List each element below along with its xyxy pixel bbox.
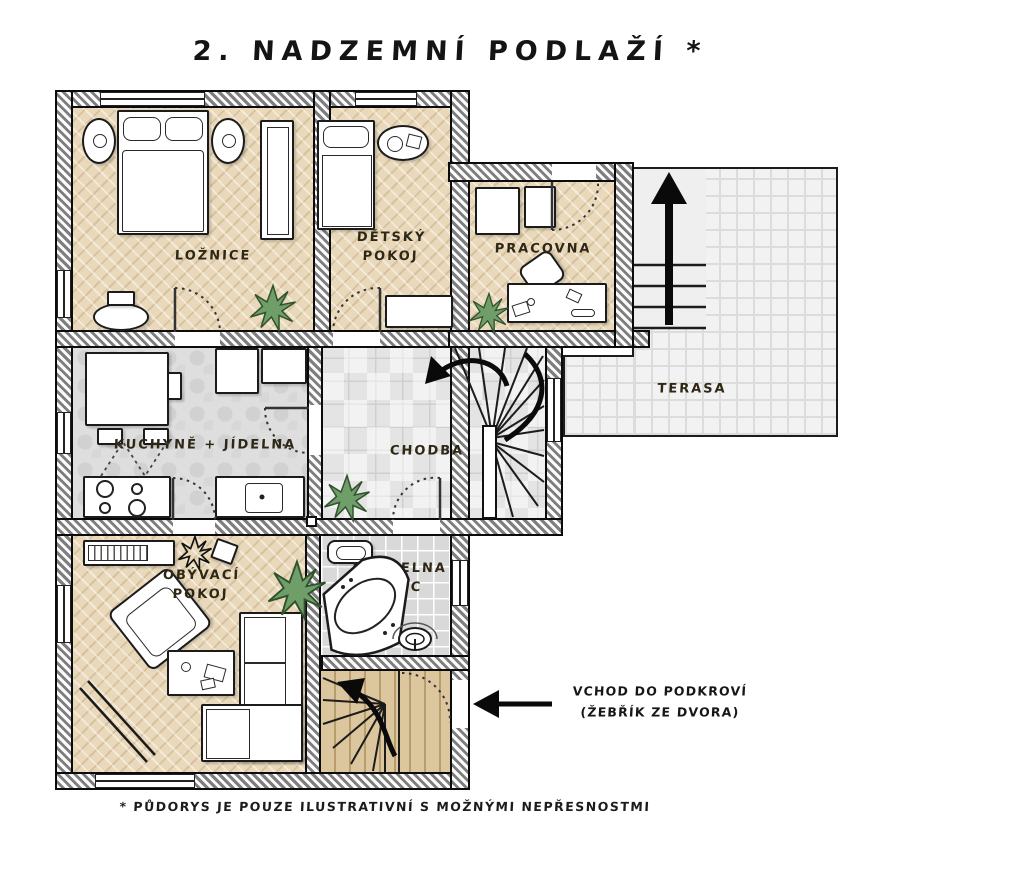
kitchen-cabinet xyxy=(215,348,259,394)
page-title: 2. NADZEMNÍ PODLAŽÍ * xyxy=(54,36,846,67)
toy xyxy=(387,136,403,152)
pillow xyxy=(123,117,161,141)
door-opening-kitchen xyxy=(309,405,321,455)
wall-study-right xyxy=(614,162,634,348)
dining-table xyxy=(85,352,169,426)
attic-entrance-note-line2: (ŽEBŘÍK ZE DVORA) xyxy=(580,705,740,720)
study-sofa xyxy=(475,187,520,235)
blanket xyxy=(322,155,372,227)
label-living-line1: OBÝVACÍ xyxy=(163,568,241,583)
sink-counter xyxy=(215,476,305,518)
magazine xyxy=(200,678,216,691)
study-desk xyxy=(507,283,607,323)
double-bed xyxy=(117,110,209,235)
door-opening-bedroom xyxy=(175,332,220,346)
label-bathroom: KOUPELNA + WC xyxy=(351,560,448,598)
lamp xyxy=(222,134,236,148)
door-opening-kids-room xyxy=(333,332,380,346)
kitchen-cabinet xyxy=(261,348,307,384)
sofa-cushion xyxy=(244,663,286,709)
vanity-mirror xyxy=(107,291,135,306)
wardrobe xyxy=(260,120,294,240)
wall-post xyxy=(306,516,317,527)
study-cabinet xyxy=(524,186,556,228)
window-hallway-terrace xyxy=(547,378,561,442)
table-item xyxy=(181,662,191,672)
play-table xyxy=(377,125,429,161)
pillow xyxy=(165,117,203,141)
floor-plan-page: { "title": "2. NADZEMNÍ PODLAŽÍ *", "roo… xyxy=(0,0,1024,876)
window-bathroom-right xyxy=(452,560,468,606)
label-bedroom: LOŽNICE xyxy=(174,248,251,267)
lamp xyxy=(93,134,107,148)
sink xyxy=(245,483,283,513)
room-attic-stairs-floor xyxy=(321,669,452,774)
door-opening-kitchen-living xyxy=(173,520,215,534)
sofa-chaise-section xyxy=(201,704,303,762)
terrace-paving-extension xyxy=(563,355,634,437)
kids-bed xyxy=(317,120,375,230)
wardrobe-door xyxy=(267,127,289,235)
wall-bath-stairs-divider xyxy=(321,655,470,671)
door-opening-bathroom xyxy=(393,520,440,534)
label-terrace: TERASA xyxy=(657,381,727,400)
label-hallway: CHODBA xyxy=(389,443,464,462)
window-bedroom-top xyxy=(100,92,205,106)
label-bathroom-line2: + WC xyxy=(374,580,422,595)
window-bedroom-left xyxy=(57,270,71,318)
window-living-left xyxy=(57,585,71,643)
window-kids-top xyxy=(355,92,417,106)
stove-counter xyxy=(83,476,171,518)
blanket xyxy=(122,150,204,232)
wall-living-bath-divider xyxy=(305,534,321,774)
kids-desk xyxy=(385,295,453,328)
sofa-cushion xyxy=(244,617,286,663)
label-living-room: OBÝVACÍ POKOJ xyxy=(161,567,240,605)
vanity-table xyxy=(93,303,149,331)
terrace-stair-landing xyxy=(634,169,706,329)
toy xyxy=(406,133,423,149)
keyboard xyxy=(571,309,595,317)
footnote: * PŮDORYS JE POUZE ILUSTRATIVNÍ S MOŽNÝM… xyxy=(55,799,716,814)
window-living-bottom xyxy=(95,774,195,788)
attic-entrance-arrow-icon xyxy=(473,690,552,718)
label-kids-room: DĚTSKÝ POKOJ xyxy=(355,229,426,267)
room-hallway-floor xyxy=(321,346,547,520)
label-study: PRACOVNA xyxy=(494,241,592,260)
desk-item xyxy=(512,301,531,317)
label-kitchen: KUCHYNĚ + JÍDELNA xyxy=(113,437,297,456)
dining-chair xyxy=(167,372,182,400)
desk-lamp xyxy=(566,289,583,304)
attic-entrance-note-line1: VCHOD DO PODKROVÍ xyxy=(572,684,747,699)
tv-shelf xyxy=(83,540,175,566)
window-kitchen-left xyxy=(57,412,71,454)
pillow xyxy=(323,126,369,148)
wall-mid-upper xyxy=(55,330,470,348)
nightstand-right xyxy=(211,118,245,164)
nightstand-left xyxy=(82,118,116,164)
label-kids-line1: DĚTSKÝ xyxy=(356,230,426,245)
wall-study-top xyxy=(448,162,634,182)
sofa-cushion xyxy=(206,709,250,759)
label-kids-line2: POKOJ xyxy=(362,249,419,264)
floor-plan: LOŽNICE DĚTSKÝ POKOJ PRACOVNA TERASA KUC… xyxy=(55,90,855,796)
tv-shelf-slats xyxy=(88,545,148,561)
opening-attic-entrance xyxy=(452,680,468,728)
label-bathroom-line1: KOUPELNA xyxy=(352,561,448,576)
sink-basin xyxy=(336,546,366,560)
label-living-line2: POKOJ xyxy=(172,587,229,602)
door-opening-study xyxy=(552,164,596,180)
coffee-table xyxy=(167,650,235,696)
